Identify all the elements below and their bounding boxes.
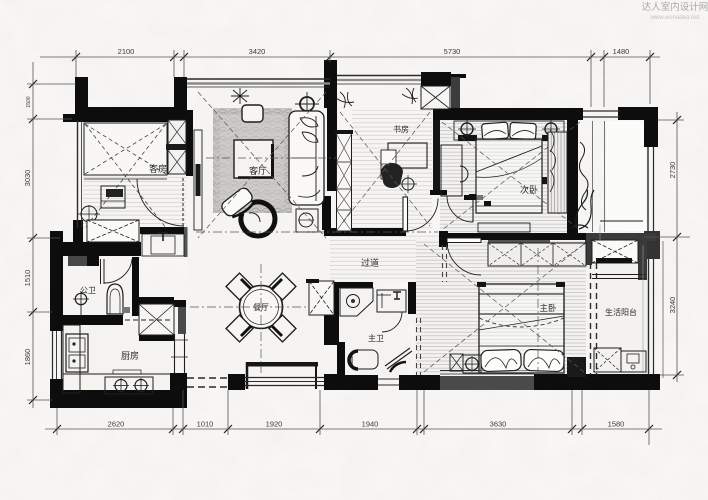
svg-text:2620: 2620	[108, 420, 125, 429]
svg-text:公卫: 公卫	[80, 286, 96, 295]
svg-text:5730: 5730	[444, 47, 461, 56]
svg-text:2730: 2730	[668, 162, 677, 179]
svg-text:1920: 1920	[266, 420, 283, 429]
svg-text:2100: 2100	[118, 47, 135, 56]
svg-text:达人室内设计网: 达人室内设计网	[642, 1, 708, 13]
svg-text:www.wonadea.net: www.wonadea.net	[650, 15, 700, 21]
svg-text:1500: 1500	[26, 96, 32, 107]
svg-text:生活阳台: 生活阳台	[605, 307, 637, 317]
svg-text:3420: 3420	[249, 47, 266, 56]
svg-text:3240: 3240	[668, 297, 677, 314]
svg-text:1860: 1860	[23, 349, 32, 366]
svg-text:客房: 客房	[149, 163, 167, 174]
svg-text:主卧: 主卧	[539, 303, 557, 313]
svg-text:1580: 1580	[608, 420, 625, 429]
svg-text:餐厅: 餐厅	[253, 303, 269, 312]
svg-text:主卫: 主卫	[368, 333, 384, 343]
svg-text:1940: 1940	[362, 420, 379, 429]
svg-text:书房: 书房	[393, 124, 409, 134]
svg-text:1510: 1510	[23, 270, 32, 287]
svg-text:厨房: 厨房	[121, 350, 139, 361]
svg-text:3030: 3030	[23, 170, 32, 187]
svg-text:1010: 1010	[197, 420, 214, 429]
svg-text:客厅: 客厅	[249, 165, 267, 176]
svg-text:3630: 3630	[490, 420, 507, 429]
svg-text:次卧: 次卧	[520, 184, 538, 195]
svg-text:1480: 1480	[613, 47, 630, 56]
svg-text:过道: 过道	[361, 257, 379, 268]
